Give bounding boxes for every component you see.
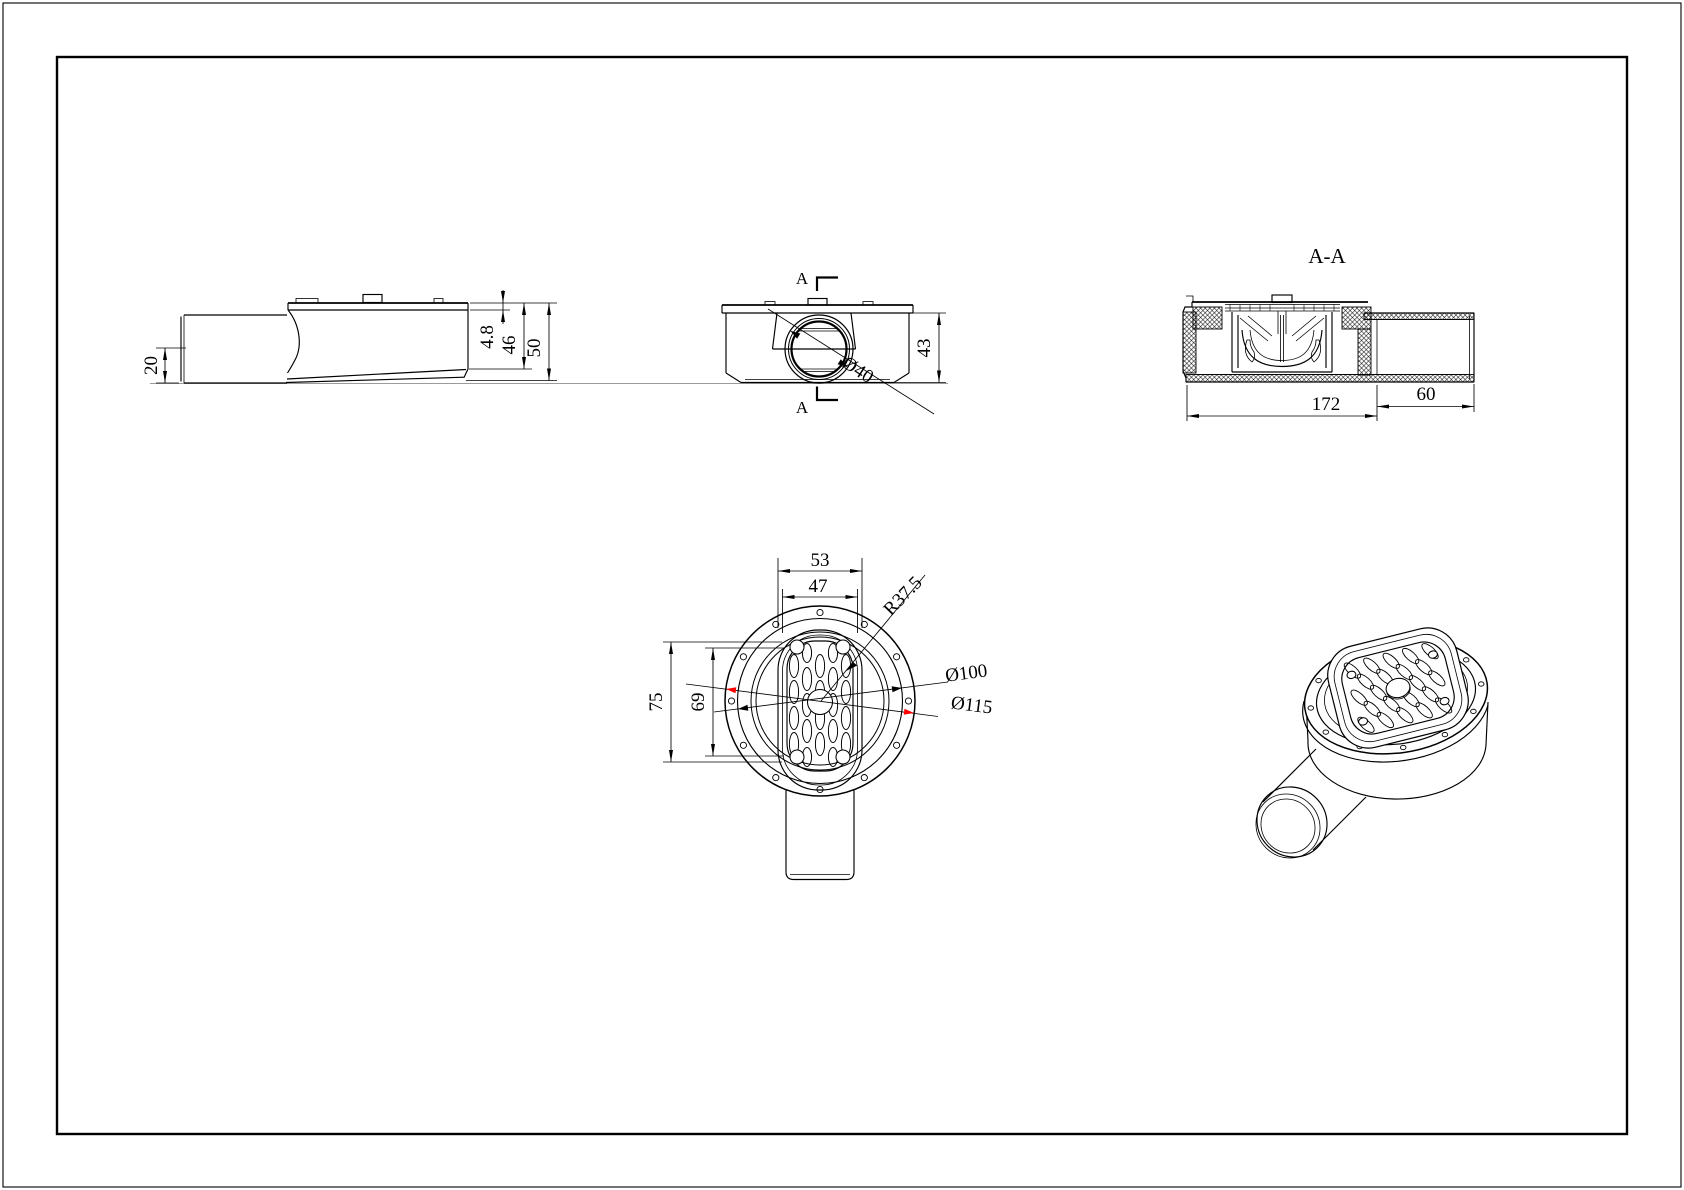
side-dims-right: 4.8 46 50: [466, 290, 557, 381]
iso-pipe: [1243, 749, 1366, 871]
dim-172-label: 172: [1312, 394, 1341, 415]
section-marker-top: A: [796, 269, 838, 291]
grate-screw-hole: [836, 750, 850, 764]
plan-pipe: [786, 790, 854, 880]
grate-screw-hole: [790, 750, 804, 764]
side-body: [286, 295, 468, 383]
plan-grate: [778, 630, 862, 790]
side-top-tab: [363, 295, 382, 303]
dim-20-label: 20: [141, 356, 162, 375]
dim-dia100-label: Ø100: [944, 660, 989, 686]
dim-50-label: 50: [524, 339, 545, 358]
front-dim-43: 43: [894, 313, 946, 383]
dim-dia115-label: Ø115: [950, 692, 994, 718]
front-top-tab: [808, 299, 827, 306]
dim-53-label: 53: [811, 550, 830, 571]
section-siphon-bell: [1242, 330, 1322, 367]
dim-60-label: 60: [1417, 384, 1436, 405]
isometric-view: [1243, 622, 1496, 872]
dim-r375-label: R37.5: [880, 572, 927, 620]
side-dim-20: 20: [141, 348, 186, 383]
front-view: A A Ø40 43: [722, 269, 946, 417]
side-view: 20 4.8 46 50: [141, 290, 557, 383]
section-cartridge: [1232, 312, 1332, 372]
section-dim-60: 60: [1377, 384, 1474, 412]
dim-69-label: 69: [688, 693, 709, 712]
plan-dim-75: 75: [646, 642, 782, 762]
plan-dim-47: 47: [783, 576, 858, 633]
side-pipe-stub: [181, 315, 287, 383]
plan-dim-dia115: Ø115: [686, 684, 994, 719]
dim-75-label: 75: [646, 693, 667, 712]
section-view: A-A: [1183, 244, 1474, 421]
section-body: [1183, 295, 1474, 382]
section-dim-172: 172: [1187, 385, 1377, 421]
side-body-curve: [288, 310, 300, 373]
outer-border: [3, 3, 1681, 1187]
plan-dim-r375: R37.5: [821, 572, 927, 701]
section-title: A-A: [1308, 244, 1346, 268]
dim-43-label: 43: [914, 339, 935, 358]
grate-screw-hole: [836, 640, 850, 654]
section-letter-bottom: A: [796, 398, 809, 417]
section-marker-bottom: A: [796, 387, 838, 418]
dim-47-label: 47: [809, 576, 828, 597]
grate-screw-hole: [790, 640, 804, 654]
inner-border: [57, 57, 1627, 1134]
plan-view: 53 47 R37.5 75 69: [646, 550, 994, 880]
drawing-sheet: 20 4.8 46 50: [0, 0, 1684, 1190]
dim-4.8-label: 4.8: [477, 325, 498, 349]
dim-46-label: 46: [499, 336, 520, 355]
section-letter-top: A: [796, 269, 809, 288]
technical-drawing-canvas: 20 4.8 46 50: [0, 0, 1684, 1190]
